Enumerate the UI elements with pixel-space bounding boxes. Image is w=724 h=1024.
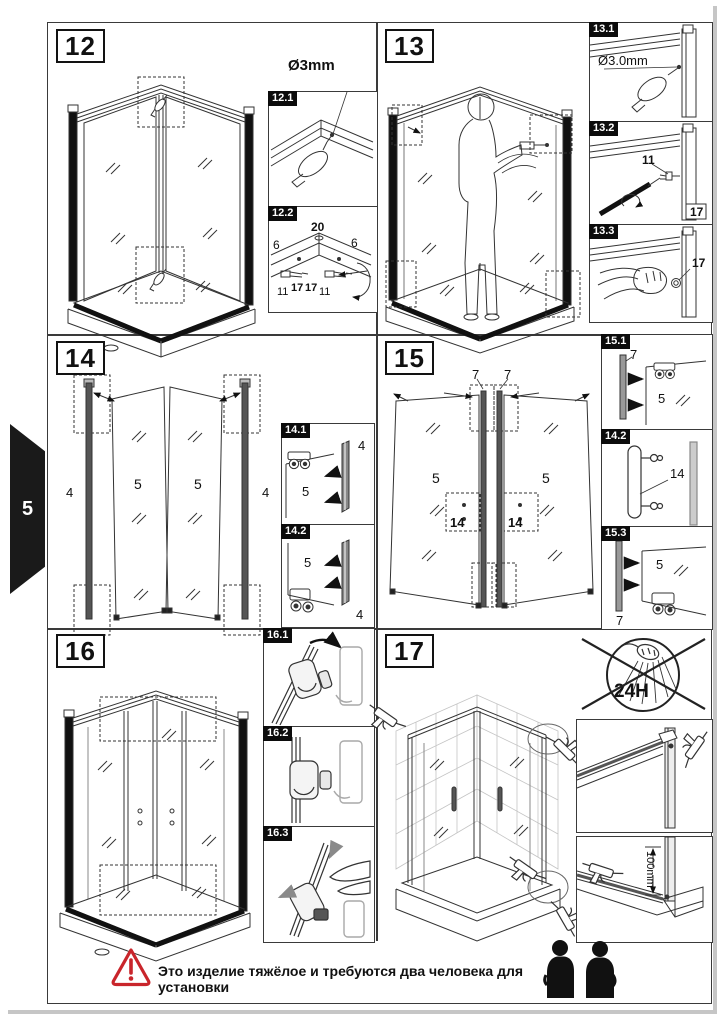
step-12-drawing [56, 63, 266, 331]
step-13-drawing [380, 63, 585, 331]
part-number-7: 7 [616, 613, 623, 628]
page-tab-number: 5 [22, 498, 33, 521]
panel-17-bottom-detail: 100mm [576, 836, 713, 943]
panel-16-3-label: 16.3 [263, 826, 292, 841]
panel-14-1-label: 14.1 [281, 423, 310, 438]
panel-13-3: 13.3 17 [589, 224, 713, 323]
panel-14-2-label: 14.2 [281, 524, 310, 539]
part-number-4: 4 [356, 607, 363, 622]
part-number-11-right: 11 [319, 286, 330, 298]
panel-15-1-label: 15.1 [601, 334, 630, 349]
part-number-5-left: 5 [432, 470, 440, 486]
part-number-4: 4 [358, 438, 365, 453]
panel-12-1-label: 12.1 [268, 91, 297, 106]
part-number-4-left: 4 [66, 485, 73, 500]
part-number-17b: 17 [692, 256, 706, 270]
panel-16-1-drawing [264, 629, 372, 725]
step-17-badge: 17 [385, 634, 434, 668]
two-installers-icon [543, 939, 623, 999]
panel-15-3-drawing: 5 7 [602, 539, 710, 627]
part-number-5-left: 5 [134, 476, 142, 492]
part-number-17-left: 17 [291, 282, 303, 294]
step-15-drawing: 7 7 5 5 14 14 [384, 365, 599, 625]
warning-triangle-icon [110, 947, 152, 989]
panel-12-1-drawing [269, 92, 375, 205]
panel-12-2-drawing: 20 6 6 11 17 17 11 [269, 221, 375, 310]
step-16-badge: 16 [56, 634, 105, 668]
panel-15-1: 15.1 7 5 [601, 334, 713, 431]
panel-16-2-drawing [264, 727, 372, 825]
panel-16-2: 16.2 [263, 726, 375, 828]
part-number-11: 11 [642, 153, 655, 167]
panel-13-2-drawing: 11 17 [590, 122, 710, 223]
panel-13-3-label: 13.3 [589, 224, 618, 239]
part-number-5: 5 [658, 391, 665, 406]
part-number-7-right: 7 [504, 367, 511, 382]
step-15-badge: 15 [385, 341, 434, 375]
content-frame: 12 Ø3mm [47, 22, 712, 1004]
panel-16-1: 16.1 [263, 628, 375, 728]
part-number-7-left: 7 [472, 367, 479, 382]
part-number-5-right: 5 [194, 476, 202, 492]
part-number-17-right: 17 [305, 282, 317, 294]
part-number-5-right: 5 [542, 470, 550, 486]
panel-13-1-label: 13.1 [589, 22, 618, 37]
part-number-14-left: 14 [450, 515, 465, 530]
panel-13-2-label: 13.2 [589, 121, 618, 136]
part-number-17: 17 [690, 205, 704, 219]
panel-14-1-drawing: 5 4 [282, 438, 372, 523]
panel-16-3-drawing [264, 827, 372, 940]
panel-12-1: 12.1 [268, 91, 378, 208]
panel-17-bottom-drawing: 100mm [577, 837, 710, 940]
panel-15-1-drawing: 7 5 [602, 347, 710, 428]
page-tab: 5 [10, 424, 45, 594]
drill-diameter-label-12: Ø3mm [288, 57, 335, 74]
step-14-drawing: 4 5 5 4 [56, 367, 278, 625]
panel-13-1: 13.1 Ø3.0mm [589, 22, 713, 123]
panel-12-2: 12.2 20 6 6 11 17 [268, 206, 378, 313]
page-edge-shadow-bottom [8, 1010, 714, 1014]
panel-17-top-drawing [577, 720, 710, 830]
panel-14-2-drawing: 5 4 [282, 539, 372, 625]
dimension-100mm-label: 100mm [644, 851, 656, 888]
no-shower-24h-icon: 24H [576, 631, 711, 717]
col-divider-row3 [376, 628, 378, 941]
step-13-badge: 13 [385, 29, 434, 63]
page-edge-shadow-right [713, 6, 717, 1014]
installer-silhouette-1 [545, 940, 574, 998]
col-divider-row2 [376, 334, 378, 628]
step-12-badge: 12 [56, 29, 105, 63]
step-16-drawing [54, 669, 260, 939]
drill-diameter-label-13: Ø3.0mm [598, 53, 648, 68]
panel-15-3-label: 15.3 [601, 526, 630, 541]
panel-13-2: 13.2 11 17 [589, 121, 713, 226]
panel-15-2: 14.2 14 [601, 429, 713, 528]
panel-15-2-label: 14.2 [601, 429, 630, 444]
panel-16-1-label: 16.1 [263, 628, 292, 643]
step-17-drawing [382, 669, 574, 939]
installer-silhouette-2 [586, 941, 615, 998]
part-number-7: 7 [630, 347, 637, 362]
part-number-5: 5 [656, 557, 663, 572]
part-number-5: 5 [304, 555, 311, 570]
part-number-20: 20 [311, 220, 325, 234]
part-number-6-left: 6 [273, 238, 280, 252]
step-14-badge: 14 [56, 341, 105, 375]
panel-14-2: 14.2 5 4 [281, 524, 375, 628]
panel-17-top-detail [576, 719, 713, 833]
no-shower-24h-text: 24H [614, 681, 649, 702]
part-number-14: 14 [670, 466, 684, 481]
part-number-6-right: 6 [351, 236, 358, 250]
part-number-4-right: 4 [262, 485, 269, 500]
manual-page: 5 12 [0, 0, 724, 1024]
part-number-11-left: 11 [277, 286, 288, 298]
panel-13-1-drawing: Ø3.0mm [590, 23, 710, 120]
part-number-14-right: 14 [508, 515, 523, 530]
panel-12-2-label: 12.2 [268, 206, 297, 221]
panel-13-3-drawing: 17 [590, 225, 710, 320]
panel-14-1: 14.1 5 4 [281, 423, 375, 526]
warning-text: Это изделие тяжёлое и требуются два чело… [158, 963, 543, 995]
panel-15-3: 15.3 5 7 [601, 526, 713, 630]
panel-16-3: 16.3 [263, 826, 375, 943]
panel-16-2-label: 16.2 [263, 726, 292, 741]
panel-15-2-drawing: 14 [602, 442, 710, 525]
part-number-5: 5 [302, 484, 309, 499]
